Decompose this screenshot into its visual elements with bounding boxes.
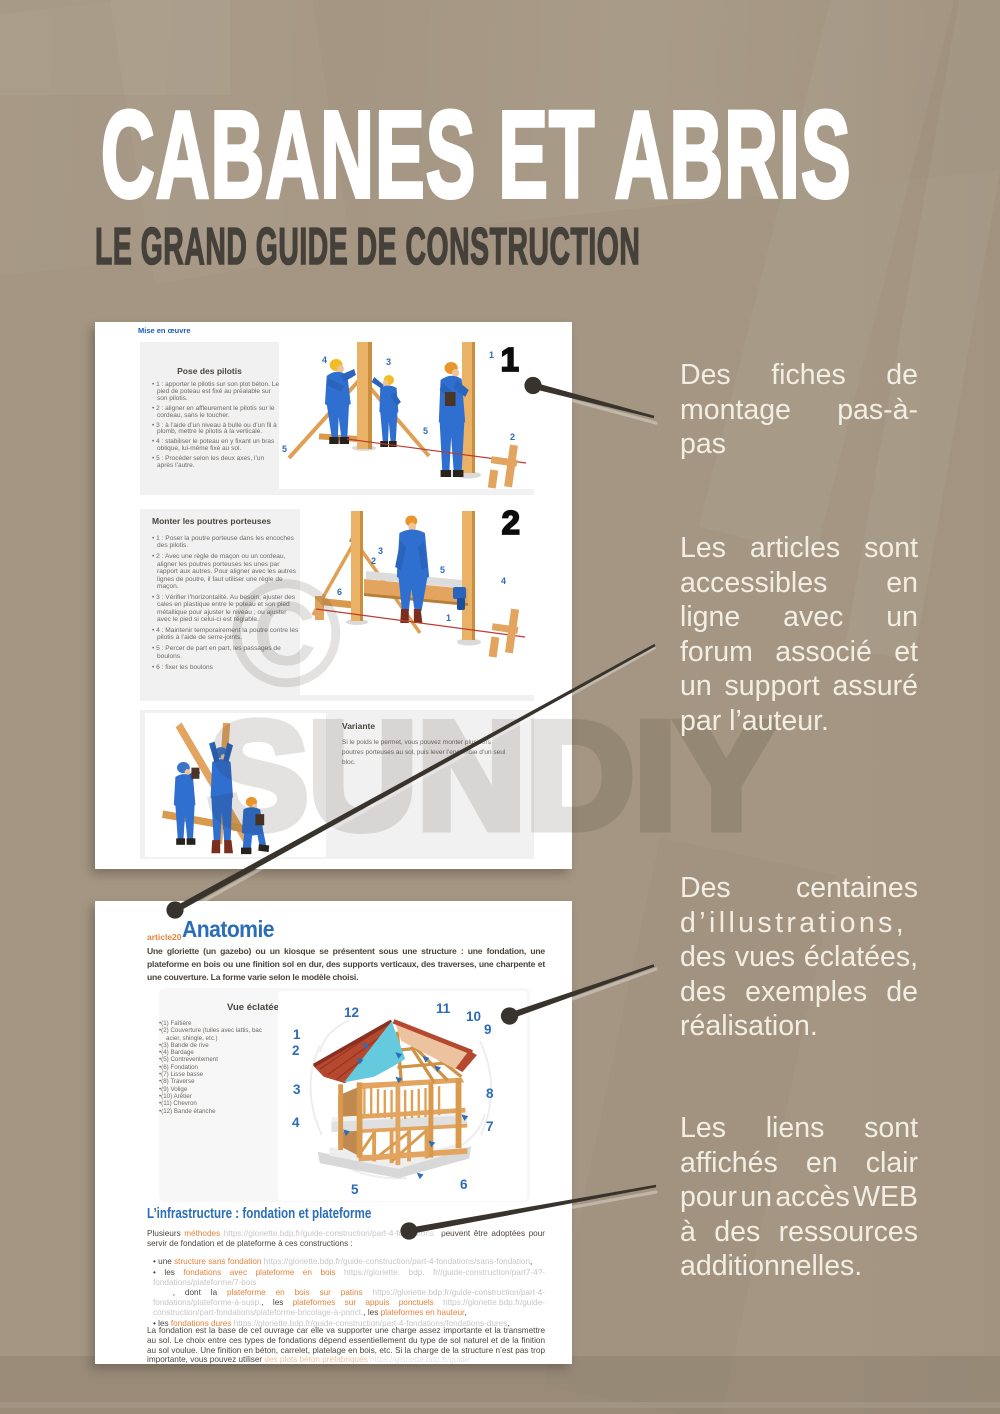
svg-text:6: 6 bbox=[337, 587, 342, 597]
svg-text:3: 3 bbox=[293, 1082, 301, 1097]
svg-text:2: 2 bbox=[510, 432, 515, 442]
svg-text:9: 9 bbox=[484, 1022, 492, 1037]
svg-text:8: 8 bbox=[486, 1086, 494, 1101]
svg-text:4: 4 bbox=[292, 1115, 300, 1130]
svg-text:5: 5 bbox=[282, 444, 287, 454]
svg-text:5: 5 bbox=[440, 565, 445, 575]
svg-text:2: 2 bbox=[371, 556, 376, 566]
svg-text:1: 1 bbox=[446, 613, 451, 623]
svg-text:6: 6 bbox=[460, 1177, 468, 1192]
svg-text:1: 1 bbox=[489, 350, 494, 360]
svg-text:5: 5 bbox=[423, 426, 428, 436]
svg-text:4: 4 bbox=[501, 576, 506, 586]
svg-text:3: 3 bbox=[378, 546, 383, 556]
svg-text:3: 3 bbox=[386, 357, 391, 367]
svg-text:5: 5 bbox=[351, 1182, 359, 1197]
svg-text:2: 2 bbox=[292, 1043, 300, 1058]
svg-text:11: 11 bbox=[436, 1001, 451, 1016]
svg-text:1: 1 bbox=[293, 1027, 301, 1042]
svg-text:7: 7 bbox=[486, 1119, 494, 1134]
svg-text:10: 10 bbox=[466, 1009, 481, 1024]
svg-text:12: 12 bbox=[344, 1005, 359, 1020]
svg-text:4: 4 bbox=[322, 355, 327, 365]
